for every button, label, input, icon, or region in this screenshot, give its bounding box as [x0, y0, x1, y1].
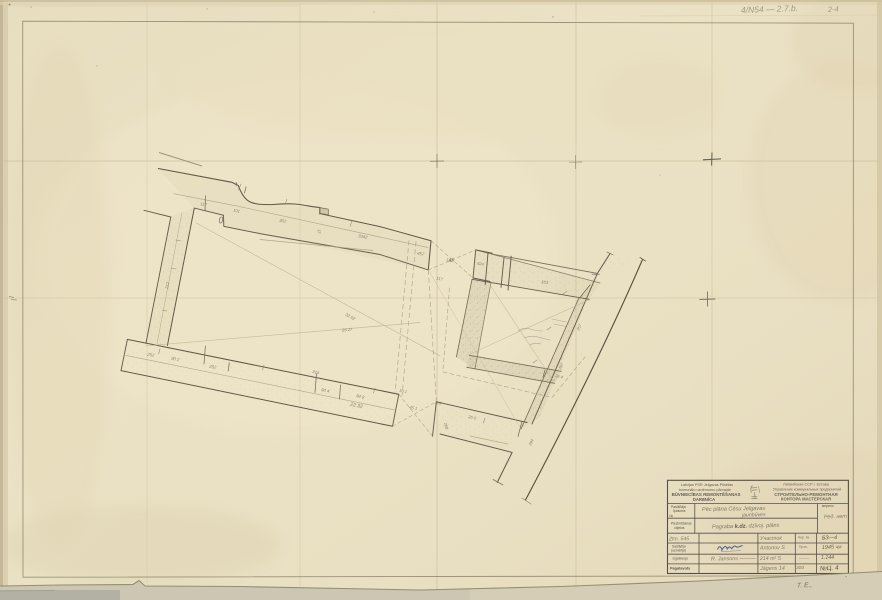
svg-text:Pagatavots: Pagatavots: [670, 567, 690, 571]
svg-text:T. E.,: T. E.,: [797, 582, 813, 590]
svg-text:īpašums: īpašums: [673, 509, 686, 513]
svg-text:Jāgens 14: Jāgens 14: [759, 566, 785, 572]
svg-text:Zīm. 545: Zīm. 545: [668, 536, 689, 542]
svg-text:DARBNĪCA: DARBNĪCA: [693, 497, 715, 502]
svg-text:Управление коммунальных предпр: Управление коммунальных предприятий: [773, 487, 841, 491]
svg-text:28 27: 28 27: [341, 327, 353, 333]
svg-text:objekts: objekts: [674, 526, 685, 530]
svg-text:4/N54 — 2.7.b.: 4/N54 — 2.7.b.: [741, 3, 798, 15]
svg-text:214 m² S: 214 m² S: [759, 556, 782, 562]
svg-text:Piezīmēšanas: Piezīmēšanas: [671, 522, 692, 526]
svg-text:jaunbūves: jaunbūves: [741, 512, 766, 518]
svg-text:Ред. нет: Ред. нет: [824, 514, 848, 521]
svg-text:———: ———: [799, 556, 810, 560]
svg-text:Пров.: Пров.: [799, 545, 808, 549]
svg-text:Latvijas PSR Jelgavas Pilsētas: Latvijas PSR Jelgavas Pilsētas: [681, 483, 733, 487]
svg-text:Antonov S: Antonov S: [759, 545, 785, 551]
svg-text:№Ц. 4: №Ц. 4: [820, 565, 839, 573]
svg-text:40: 40: [448, 257, 455, 264]
svg-text:мерило: мерило: [822, 504, 834, 508]
svg-text:Участок: Участок: [759, 536, 782, 542]
svg-text:1.144: 1.144: [821, 555, 834, 561]
svg-text:komunālo uzņēmumu pārvalde: komunālo uzņēmumu pārvalde: [679, 488, 731, 492]
svg-text:2-4: 2-4: [827, 4, 839, 14]
svg-text:Латвийская ССР г. Елгава: Латвийская ССР г. Елгава: [783, 483, 830, 487]
svg-text:КОНТОРА МАСТЕРСКАЯ: КОНТОРА МАСТЕРСКАЯ: [781, 497, 831, 502]
svg-text:R. Jansons ———: R. Jansons ———: [711, 556, 756, 563]
svg-text:БЗ—4: БЗ—4: [822, 535, 837, 542]
svg-text:Чер. №: Чер. №: [798, 536, 810, 540]
svg-text:(uzmērīja): (uzmērīja): [671, 549, 686, 553]
svg-text:№: №: [670, 514, 674, 518]
svg-text:Izgatavoja: Izgatavoja: [673, 557, 688, 561]
svg-text:300: 300: [796, 565, 804, 571]
